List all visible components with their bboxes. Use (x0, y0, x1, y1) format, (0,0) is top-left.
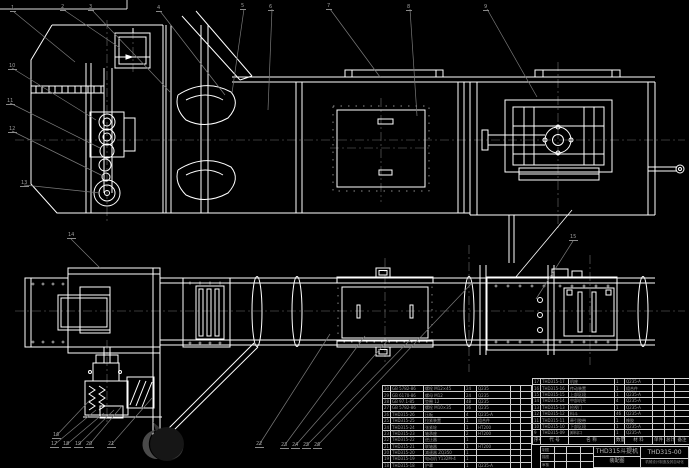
bucket-lower (177, 161, 235, 200)
balloon-22: 22 (255, 442, 264, 448)
balloon-6: 6 (268, 5, 274, 11)
title-block: 制图描图审核 THD315斗提机 装配图 THD315-00 机械设计制造及其自… (540, 446, 689, 468)
signoff-grid: 制图描图审核 (540, 446, 593, 468)
takeup-window (115, 33, 150, 68)
door-handle-upper (378, 119, 393, 124)
discharge-spout (509, 215, 514, 263)
takeup-arrow (126, 55, 132, 59)
head-top-flange (535, 70, 620, 77)
reducer (85, 381, 128, 415)
balloon-5: 5 (240, 4, 246, 10)
pull-rod (648, 167, 677, 171)
balloon-10: 10 (8, 64, 17, 70)
signoff-row: 制图 (541, 447, 593, 454)
bom-header-row: 序号代 号名 称数量材 料单件总计备注 (533, 436, 689, 444)
side-elevation-view (31, 11, 684, 278)
bucket-upper (177, 86, 235, 125)
signoff-cell (555, 462, 567, 468)
balloon-2: 2 (60, 5, 66, 11)
signoff-cell: 描图 (541, 454, 555, 460)
balloon-7: 7 (326, 4, 332, 10)
balloon-4: 4 (156, 6, 162, 12)
section-line (515, 210, 572, 278)
flange-ring (252, 277, 262, 347)
balloon-14: 14 (67, 233, 76, 239)
support-brace (160, 343, 258, 437)
feed-chute (182, 11, 252, 80)
boot-ledge-hatch (31, 86, 104, 93)
signoff-cell: 审核 (541, 462, 555, 468)
balloon-23: 23 (280, 443, 289, 449)
drive-assembly-outer (505, 100, 612, 172)
signoff-cell (555, 447, 567, 453)
signoff-cell (567, 462, 581, 468)
org-name: 机械设计制造及其自动化 (641, 458, 688, 465)
takeup-bracket (124, 118, 135, 151)
balloon-21: 21 (107, 442, 116, 448)
drawing-type: 装配图 (594, 456, 640, 465)
balloon-26: 26 (313, 443, 322, 449)
flange-ring (292, 277, 302, 347)
signoff-cell (581, 447, 593, 453)
balloon-20: 20 (85, 442, 94, 448)
bom-table-left: 30GB 5782-86螺栓 M12×4524Q23529GB 6170-86螺… (382, 385, 532, 468)
balloon-18: 18 (62, 442, 71, 448)
balloon-12: 12 (8, 127, 17, 133)
signoff-cell: 制图 (541, 447, 555, 453)
signoff-cell (581, 454, 593, 460)
signoff-cell (555, 454, 567, 460)
drawing-number-cell: THD315-00 机械设计制造及其自动化 (641, 446, 689, 468)
table-row: 18THD315-18护罩1Q235-A (383, 462, 532, 468)
boot-window-plan (58, 295, 110, 330)
top-flange-strip (345, 70, 443, 77)
signoff-row: 描图 (541, 454, 593, 461)
signoff-cell (567, 447, 581, 453)
balloon-16: 16 (52, 433, 61, 439)
casing-joint-flanges (296, 82, 464, 213)
signoff-cell (581, 462, 593, 468)
bearing-housings (524, 107, 594, 165)
balloon-17: 17 (50, 442, 59, 448)
flange-ring (638, 277, 648, 347)
bom-table-right: 17THD315-17机座1Q235-A16THD315-16传动装置1组合件1… (532, 378, 689, 445)
balloon-3: 3 (88, 5, 94, 11)
drawing-title-cell: THD315斗提机 装配图 (593, 446, 641, 468)
balloon-15: 15 (569, 235, 578, 241)
balloon-24: 24 (291, 443, 300, 449)
head-casing (470, 82, 655, 215)
pull-rod-eye (676, 165, 684, 173)
watermark-logo (142, 422, 184, 461)
bucket-column-walls (166, 25, 208, 213)
balloon-13: 13 (20, 181, 29, 187)
balloon-8: 8 (406, 5, 412, 11)
spring-symbol (89, 386, 95, 410)
middle-casing (163, 77, 655, 213)
product-name: THD315斗提机 (594, 447, 640, 456)
center-lines (15, 20, 685, 425)
balloon-19: 19 (74, 442, 83, 448)
flange-bolt-crosses (32, 283, 65, 344)
part-leader-lines (10, 9, 573, 446)
coupling (93, 363, 119, 381)
signoff-row: 审核 (541, 462, 593, 468)
balloon-1: 1 (10, 6, 16, 12)
cad-drawing-canvas: 1234567891011121314151617181920212223242… (0, 0, 689, 468)
balloon-25: 25 (302, 443, 311, 449)
boot-body-plan (68, 268, 160, 353)
takeup-window-inner (119, 37, 146, 64)
balloon-11: 11 (6, 99, 15, 105)
signoff-cell (567, 454, 581, 460)
drawing-number: THD315-00 (641, 447, 688, 458)
drive-assembly-inner (513, 107, 604, 165)
balloon-9: 9 (483, 5, 489, 11)
